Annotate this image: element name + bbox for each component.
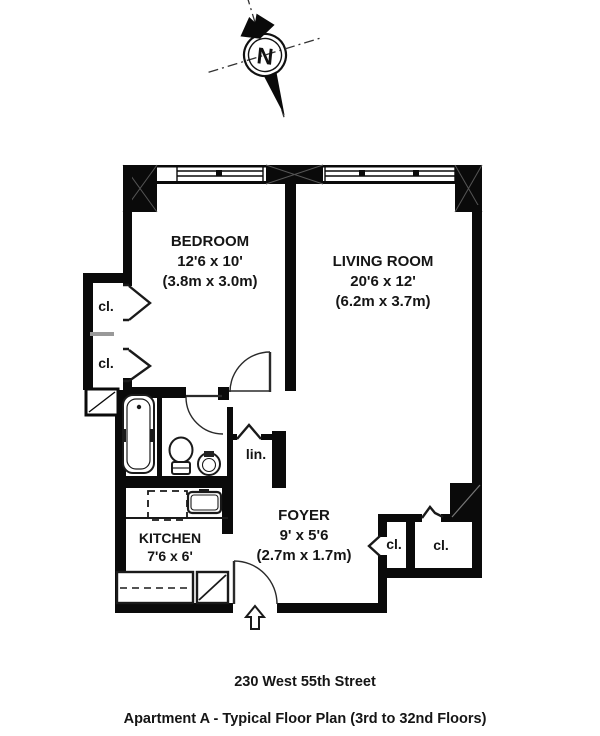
bathroom-fixtures [122,395,220,475]
lower-closet-door [123,349,150,381]
living-room-dimensions: 20'6 x 12' [350,274,416,289]
living-room-metric: (6.2m x 3.7m) [335,294,430,309]
bedroom-door [229,352,270,392]
upper-closet-door [123,285,150,320]
floor-plan-drawing: N [0,0,600,736]
closet-label-foyer-right: cl. [433,538,449,552]
linen-closet-door [237,425,261,439]
shaft-box [86,389,118,415]
foyer-metric: (2.7m x 1.7m) [256,548,351,563]
kitchen-label: KITCHEN [139,531,201,545]
bedroom-label: BEDROOM [171,234,249,249]
compass-rose-icon: N [190,0,340,134]
living-room-label: LIVING ROOM [333,254,434,269]
kitchen-lower-counter [117,572,193,603]
compass-north-letter: N [255,42,274,70]
kitchen-fixtures [117,489,228,603]
address-title: 230 West 55th Street [234,675,376,690]
kitchen-sink [188,489,221,513]
kitchen-dimensions: 7'6 x 6' [147,549,193,563]
bedroom-metric: (3.8m x 3.0m) [162,274,257,289]
closet-label-bedroom-lower: cl. [98,356,114,370]
bedroom-dimensions: 12'6 x 10' [177,254,243,269]
floor-plan-page: N [0,0,600,736]
bathroom-door [186,396,223,434]
exterior-top-wall [123,165,482,212]
bathroom-sink [198,451,220,475]
foyer-left-closet-door [369,536,380,556]
closet-label-bedroom-upper: cl. [98,299,114,313]
kitchen-appliance-dashed [148,491,187,520]
entry-door [234,561,277,604]
entry-arrow-icon [246,606,264,629]
plan-subtitle: Apartment A - Typical Floor Plan (3rd to… [124,712,487,727]
toilet [170,438,193,475]
bathtub [122,395,154,473]
closet-label-foyer-left: cl. [386,537,402,551]
foyer-right-closet-door [422,507,443,518]
linen-closet-label: lin. [246,447,266,461]
foyer-dimensions: 9' x 5'6 [280,528,329,543]
foyer-label: FOYER [278,508,330,523]
closet-shelf [90,332,114,336]
refrigerator [197,572,228,603]
